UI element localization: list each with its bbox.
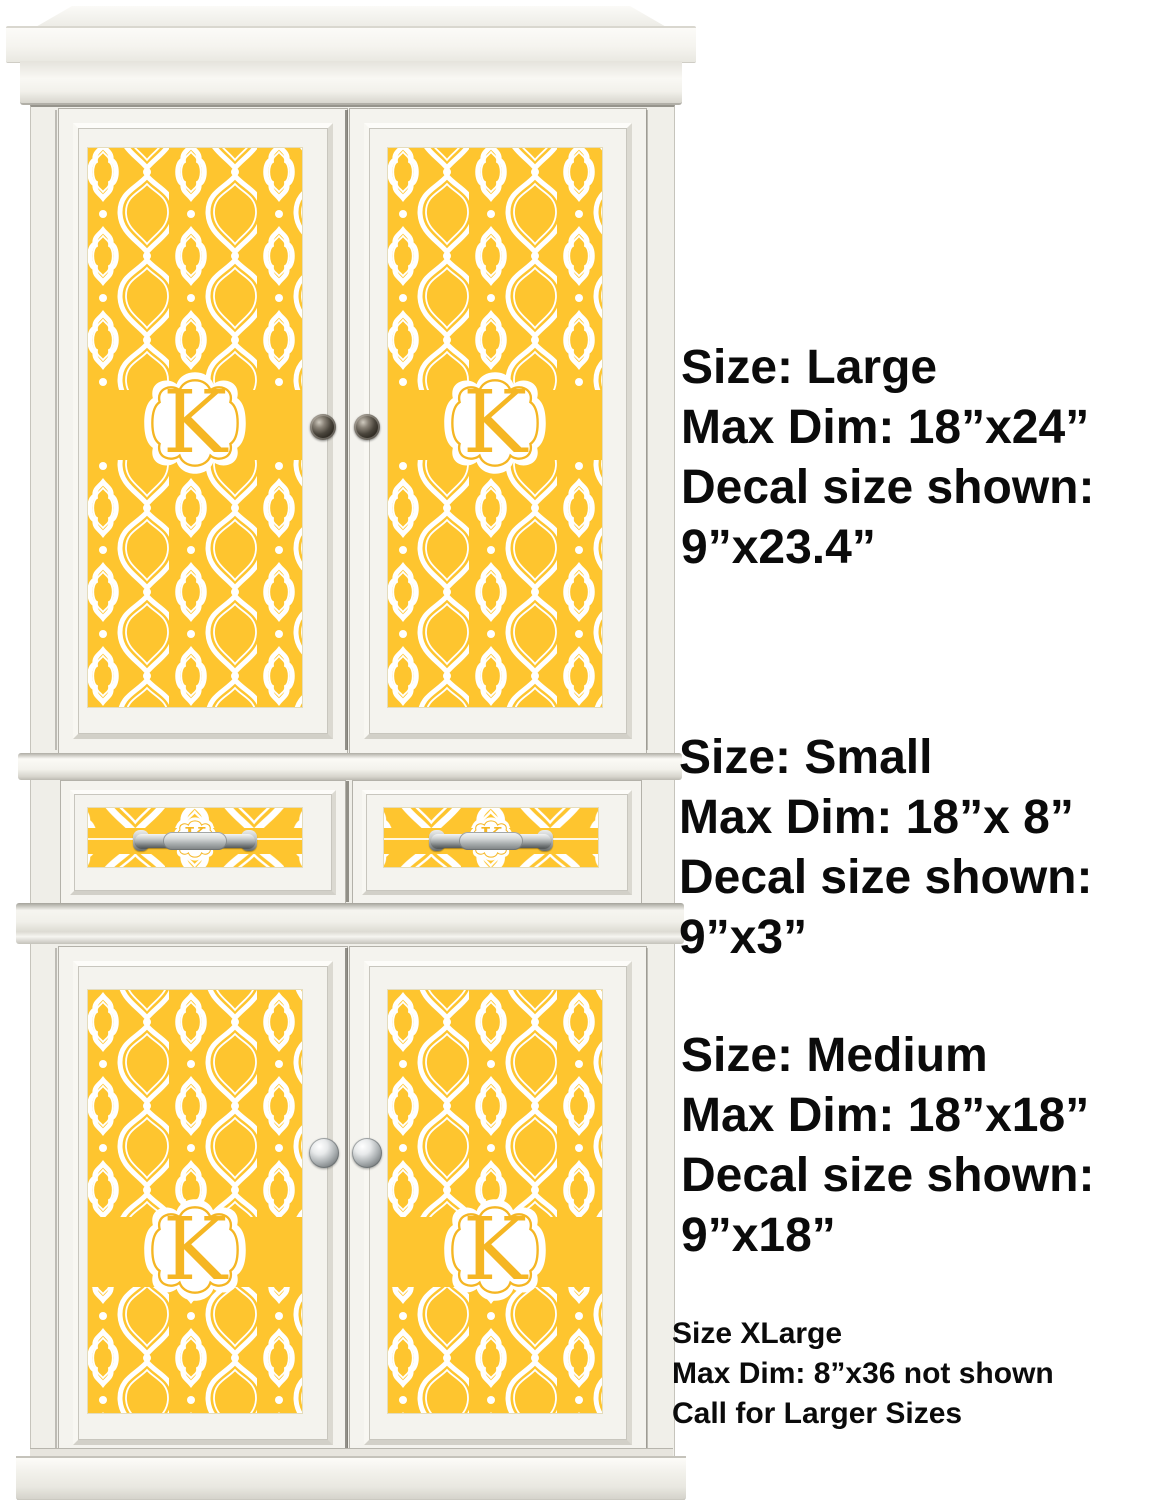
lower-left-door-knob (309, 1138, 339, 1168)
size-block-small: Size: Small Max Dim: 18”x 8” Decal size … (679, 728, 1092, 968)
lower-right-door-knob (352, 1138, 382, 1168)
size-line: 9”x23.4” (681, 518, 1094, 578)
size-line: Decal size shown: (679, 848, 1092, 908)
monogram-decal: K (88, 148, 302, 707)
upper-right-door-knob (354, 414, 380, 440)
mid-molding-lower (16, 903, 684, 944)
lower-door-gap (345, 948, 348, 1456)
size-line: Max Dim: 18”x24” (681, 398, 1094, 458)
size-line: Max Dim: 18”x18” (681, 1086, 1094, 1146)
crown-molding-board (6, 26, 696, 63)
upper-left-door-knob (310, 414, 336, 440)
size-line: Decal size shown: (681, 458, 1094, 518)
monogram-letter: K (163, 373, 227, 473)
cabinet-top-surface (34, 6, 668, 28)
monogram-letter: K (463, 1200, 527, 1300)
size-line: Call for Larger Sizes (672, 1394, 1054, 1434)
size-line: Max Dim: 8”x36 not shown (672, 1354, 1054, 1394)
size-line: Size XLarge (672, 1314, 1054, 1354)
size-block-xlarge: Size XLarge Max Dim: 8”x36 not shown Cal… (672, 1314, 1054, 1434)
monogram-decal: K (388, 990, 602, 1413)
size-block-large: Size: Large Max Dim: 18”x24” Decal size … (681, 338, 1094, 578)
size-line: Max Dim: 18”x 8” (679, 788, 1092, 848)
size-line: 9”x18” (681, 1206, 1094, 1266)
upper-left-gap (55, 110, 57, 750)
lower-left-gap (55, 948, 57, 1456)
drawer-gap (346, 781, 349, 902)
size-line: 9”x3” (679, 908, 1092, 968)
left-drawer-pull-grip (163, 832, 227, 850)
size-line: Decal size shown: (681, 1146, 1094, 1206)
size-line: Size: Large (681, 338, 1094, 398)
monogram-letter: K (463, 373, 527, 473)
monogram-decal: K (88, 990, 302, 1413)
monogram-letter: K (163, 1200, 227, 1300)
size-line: Size: Small (679, 728, 1092, 788)
size-line: Size: Medium (681, 1026, 1094, 1086)
base-plinth (16, 1456, 686, 1500)
monogram-decal: K (388, 148, 602, 707)
product-size-guide-image: KKKKKK Size: Large Max Dim: 18”x24” Deca… (0, 0, 1151, 1500)
mid-molding-upper (18, 753, 682, 780)
lower-right-gap (646, 948, 648, 1456)
upper-door-gap (345, 110, 348, 750)
size-block-medium: Size: Medium Max Dim: 18”x18” Decal size… (681, 1026, 1094, 1266)
right-drawer-pull-grip (459, 832, 523, 850)
crown-molding-cove (20, 61, 682, 105)
upper-right-gap (646, 110, 648, 750)
